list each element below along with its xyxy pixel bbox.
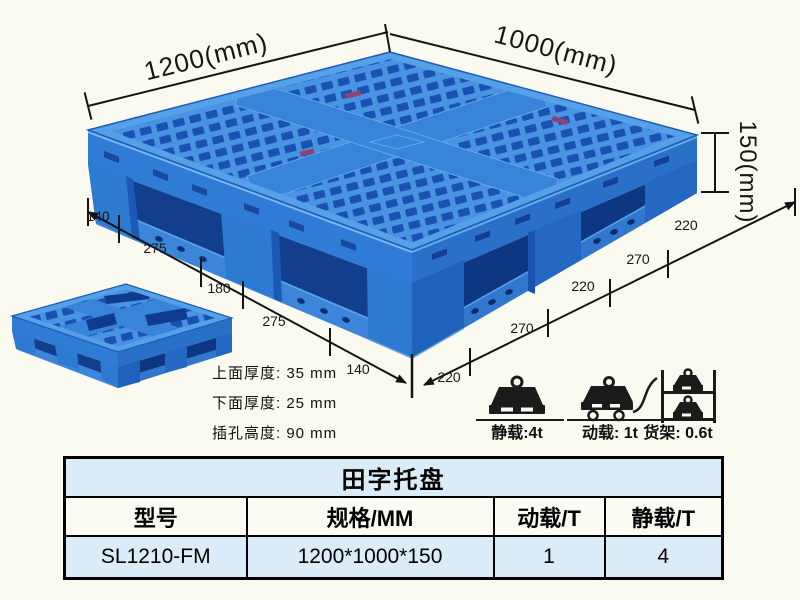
front-right-segment-label: 270	[510, 320, 533, 336]
front-left-segment-label: 275	[262, 313, 285, 329]
product-spec-sheet: 1200(mm) 1000(mm) 150(mm) 140 275 180 27…	[0, 0, 800, 600]
front-right-segment-label: 270	[626, 251, 649, 267]
front-left-segment-label: 180	[207, 280, 230, 296]
height-dimension-label: 150(mm)	[733, 120, 761, 223]
header-model: 型号	[65, 497, 247, 536]
cell-model: SL1210-FM	[65, 536, 247, 579]
cell-dynamic-load: 1	[494, 536, 605, 579]
spec-table: 田字托盘 型号 规格/MM 动载/T 静载/T SL1210-FM 1200*1…	[63, 456, 724, 580]
bottom-thickness-note: 下面厚度: 25 mm	[212, 392, 337, 413]
thumbnail-pallet-image	[5, 278, 240, 388]
top-thickness-note: 上面厚度: 35 mm	[212, 362, 337, 383]
spec-table-title-row: 田字托盘	[65, 458, 723, 498]
header-size: 规格/MM	[247, 497, 494, 536]
cell-static-load: 4	[605, 536, 723, 579]
spec-table-data-row: SL1210-FM 1200*1000*150 1 4	[65, 536, 723, 579]
dynamic-load-label: 动载: 1t	[582, 419, 638, 443]
spec-table-header-row: 型号 规格/MM 动载/T 静载/T	[65, 497, 723, 536]
load-rating-icons	[476, 370, 716, 424]
header-dynamic-load: 动载/T	[494, 497, 605, 536]
front-right-segment-label: 220	[674, 217, 697, 233]
static-load-icon	[476, 377, 564, 420]
cell-size: 1200*1000*150	[247, 536, 494, 579]
front-left-segment-label: 140	[346, 361, 369, 377]
header-static-load: 静载/T	[605, 497, 723, 536]
height-dimension-line	[701, 133, 729, 192]
fork-height-note: 插孔高度: 90 mm	[212, 422, 337, 443]
front-left-segment-label: 140	[86, 208, 109, 224]
dynamic-load-icon	[567, 378, 663, 421]
front-right-segment-label: 220	[571, 278, 594, 294]
front-left-segment-label: 275	[143, 240, 166, 256]
spec-table-title: 田字托盘	[65, 458, 723, 498]
rack-load-icon	[661, 370, 716, 424]
rack-load-label: 货架: 0.6t	[643, 419, 712, 443]
static-load-label: 静载:4t	[491, 419, 543, 443]
front-right-segment-label: 220	[437, 369, 460, 385]
